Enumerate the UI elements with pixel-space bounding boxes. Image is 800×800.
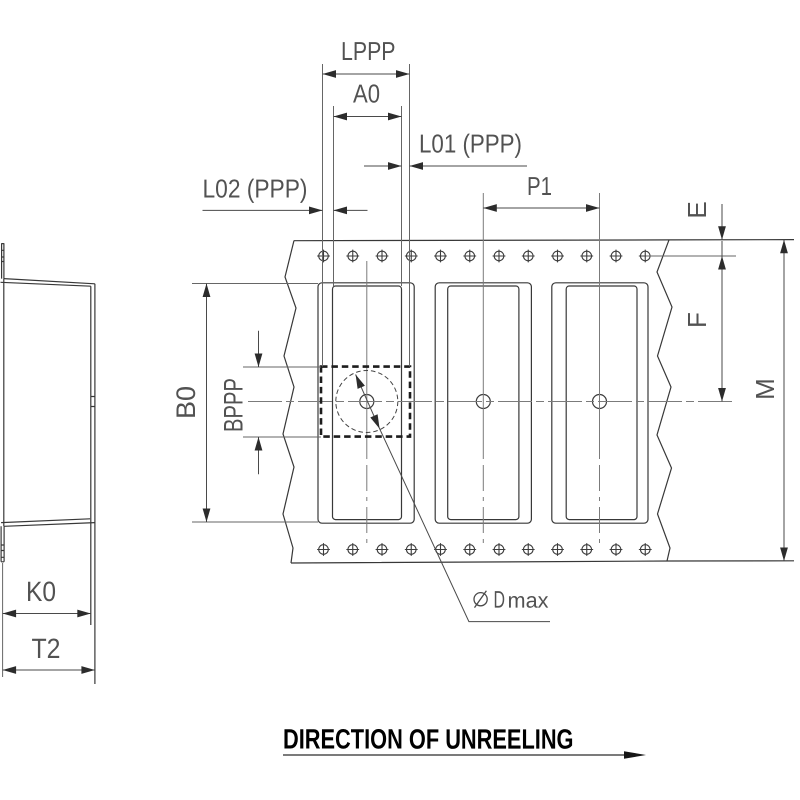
svg-text:K0: K0 [26,576,56,607]
svg-text:BPPP: BPPP [219,378,249,432]
svg-text:B0: B0 [171,386,201,419]
svg-text:LPPP: LPPP [341,36,396,66]
svg-text:D: D [493,587,505,614]
svg-text:E: E [682,201,712,218]
svg-text:DIRECTION OF UNREELING: DIRECTION OF UNREELING [283,724,574,755]
svg-text:P1: P1 [527,171,552,201]
svg-text:max: max [507,589,548,613]
svg-text:L01 (PPP): L01 (PPP) [419,129,522,159]
svg-text:T2: T2 [31,633,60,664]
svg-text:F: F [682,312,712,328]
svg-text:A0: A0 [353,79,380,109]
svg-text:L02 (PPP): L02 (PPP) [202,174,307,204]
svg-text:M: M [750,378,780,400]
